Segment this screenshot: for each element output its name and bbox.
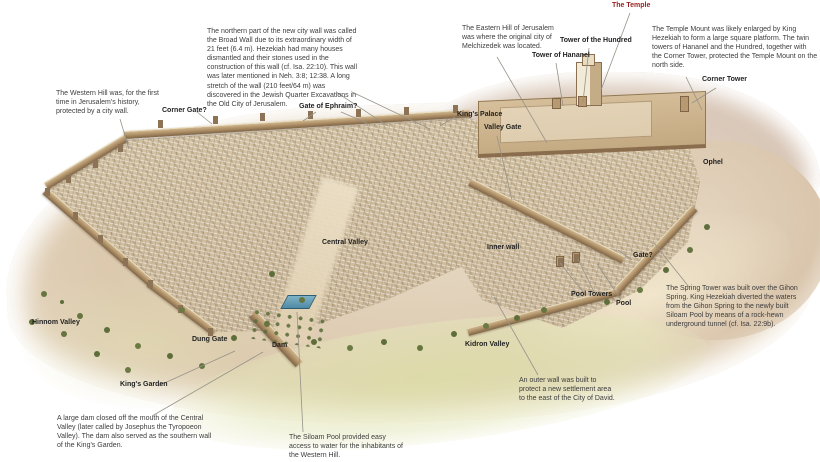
scattered-trees <box>60 300 64 304</box>
note-large-dam: A large dam closed off the mouth of the … <box>57 414 213 450</box>
label-inner-wall: Inner wall <box>487 244 519 251</box>
note-outer-wall: An outer wall was built to protect a new… <box>519 376 615 403</box>
label-kidron-valley: Kidron Valley <box>465 341 509 348</box>
label-central-valley: Central Valley <box>322 239 368 246</box>
label-hinnom-valley: Hinnom Valley <box>32 319 80 326</box>
label-kings-palace: King's Palace <box>457 111 502 118</box>
label-gate: Gate? <box>633 252 653 259</box>
temple-courtyard <box>500 101 652 144</box>
wall-towers <box>158 120 163 128</box>
pool-tower-building-east <box>572 252 580 263</box>
note-broad-wall: The northern part of the new city wall w… <box>207 27 360 109</box>
tower-of-hananel-building <box>552 98 561 109</box>
label-the-temple: The Temple <box>612 2 650 9</box>
label-corner-tower: Corner Tower <box>702 76 747 83</box>
label-pool: Pool <box>616 300 631 307</box>
jerusalem-map-diagram: The Western Hill was, for the first time… <box>0 0 820 462</box>
label-pool-towers: Pool Towers <box>571 291 612 298</box>
note-siloam-pool: The Siloam Pool provided easy access to … <box>289 433 409 460</box>
label-valley-gate: Valley Gate <box>484 124 521 131</box>
label-gate-of-ephraim: Gate of Ephraim? <box>299 103 357 110</box>
label-kings-garden: King's Garden <box>120 381 168 388</box>
label-tower-of-the-hundred: Tower of the Hundred <box>560 37 632 44</box>
label-dam: Dam <box>272 342 287 349</box>
label-dung-gate: Dung Gate <box>192 336 227 343</box>
note-western-hill: The Western Hill was, for the first time… <box>56 89 162 116</box>
note-eastern-hill: The Eastern Hill of Jerusalem was where … <box>462 24 556 51</box>
corner-tower-building <box>680 96 689 112</box>
note-spring-tower: The Spring Tower was built over the Giho… <box>666 284 808 329</box>
label-tower-of-hananel: Tower of Hananel <box>532 52 590 59</box>
label-ophel: Ophel <box>703 159 723 166</box>
pool-tower-building-west <box>556 256 564 267</box>
note-temple-mount: The Temple Mount was likely enlarged by … <box>652 25 818 70</box>
tower-of-the-hundred-building <box>578 96 587 107</box>
label-corner-gate: Corner Gate? <box>162 107 207 114</box>
